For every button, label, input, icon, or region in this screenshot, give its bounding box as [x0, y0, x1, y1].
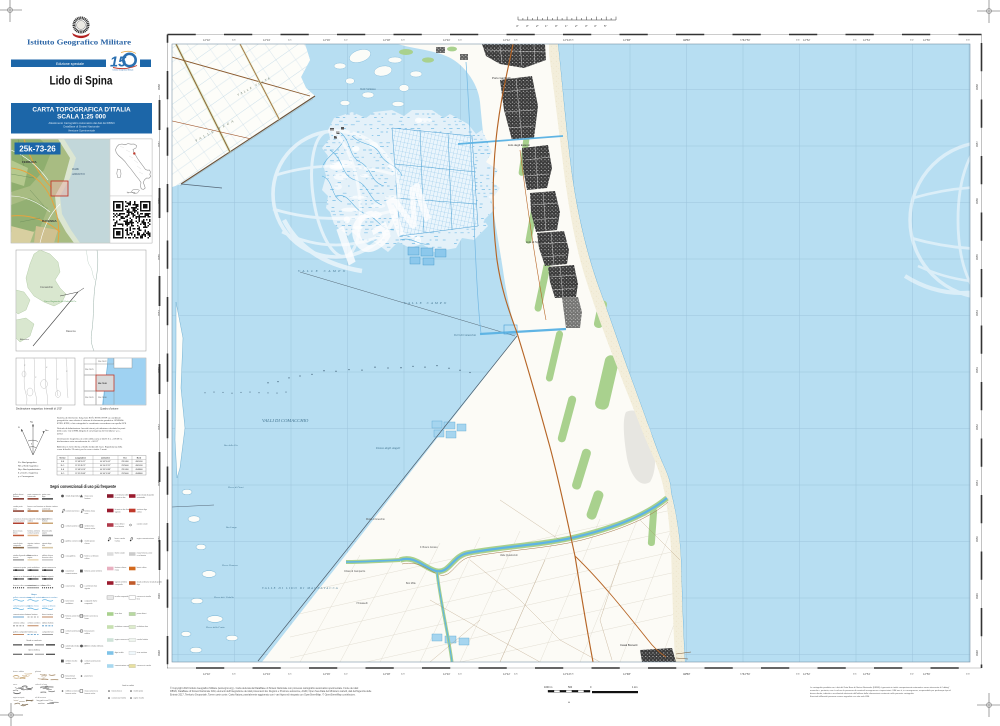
svg-text:dello carta: m= 0.9996. Angolo: dello carta: m= 0.9996. Angolo di conver…	[57, 430, 121, 433]
svg-text:MARE: MARE	[72, 168, 79, 171]
svg-text:carrareccia frutteto: carrareccia frutteto	[112, 697, 127, 700]
svg-text:autostrada: autostrada	[137, 496, 145, 499]
svg-text:Edizione speciale: Edizione speciale	[56, 62, 84, 66]
svg-text:Limiti e confini: Limiti e confini	[122, 684, 135, 687]
svg-text:prato: prato	[13, 507, 17, 510]
svg-text:tranvia: tranvia	[115, 539, 120, 542]
svg-text:tranvia bosco: tranvia bosco	[112, 690, 122, 693]
svg-text:faro edificio: faro edificio	[42, 584, 51, 587]
svg-text:Sistema di riferimento: Italy: Sistema di riferimento: Italy Zone Et Ét…	[57, 417, 121, 420]
svg-text:γ = Convergenza: γ = Convergenza	[18, 475, 35, 478]
svg-text:1°: 1°	[35, 377, 37, 379]
svg-text:Comacchio: Comacchio	[40, 285, 54, 289]
svg-text:pozzo binari: pozzo binari	[137, 612, 147, 615]
svg-text:autostrada: autostrada	[28, 495, 36, 498]
svg-text:coltivo: coltivo	[85, 557, 90, 560]
svg-text:faro: faro	[137, 597, 140, 600]
svg-text:ferrovia a due: ferrovia a due	[66, 692, 77, 695]
svg-text:calanchi e forre: calanchi e forre	[35, 683, 47, 686]
svg-text:SCALA 1:25 000: SCALA 1:25 000	[57, 114, 106, 121]
svg-text:Reticolo di delimitazione: fas: Reticolo di delimitazione: fascetti inte…	[57, 427, 126, 430]
svg-text:7625600: 7625600	[121, 473, 128, 475]
svg-text:Acque: Acque	[31, 593, 36, 596]
svg-text:Declinazione magnetica: Interv: Declinazione magnetica: Intervalli di 1'…	[16, 408, 62, 411]
svg-text:44°40'12.48": 44°40'12.48"	[100, 473, 111, 475]
svg-text:pozzo carrareccia: pozzo carrareccia	[42, 566, 56, 569]
svg-text:torre faro: torre faro	[115, 612, 122, 615]
svg-text:ferrovia a due: ferrovia a due	[42, 556, 53, 559]
svg-text:casa tranvia: casa tranvia	[66, 585, 75, 588]
svg-text:a un binario: a un binario	[137, 554, 146, 557]
svg-text:ferrovia a due: ferrovia a due	[66, 677, 77, 680]
svg-text:galleria: galleria	[85, 662, 91, 665]
svg-text:a un binario: a un binario	[115, 525, 124, 528]
svg-text:Declinazione magnetica al cent: Declinazione magnetica al centro della c…	[57, 438, 123, 441]
svg-text:0°: 0°	[46, 367, 48, 369]
svg-text:Segni convenzionali di uso più: Segni convenzionali di uso più frequente	[50, 484, 117, 489]
svg-text:argine carrareccia: argine carrareccia	[115, 638, 129, 641]
svg-text:ferrovia a due sentiero: ferrovia a due sentiero	[85, 570, 102, 573]
svg-text:Vertice: Vertice	[59, 456, 65, 459]
svg-text:25k-73-30: 25k-73-30	[98, 397, 107, 399]
svg-text:fiume: fiume	[85, 618, 89, 620]
svg-text:ETRS: ETRF, a fini cartografic: ETRS: ETRF, a fini cartografici le coord…	[57, 422, 127, 425]
svg-text:12°48'24.18": 12°48'24.18"	[75, 469, 86, 471]
svg-text:argini scarpate: argini scarpate	[13, 696, 25, 699]
svg-text:Parco Regionale del Delta del: Parco Regionale del Delta del Po	[44, 300, 77, 303]
svg-text:comunicazione: comunicazione	[66, 573, 78, 575]
svg-text:casa a un binario: casa a un binario	[42, 604, 55, 607]
svg-text:12°32'46.79": 12°32'46.79"	[75, 465, 86, 467]
svg-text:4948800: 4948800	[135, 473, 142, 475]
svg-text:carrareccia sentiero: carrareccia sentiero	[42, 596, 57, 599]
svg-text:25k-73-29: 25k-73-29	[85, 397, 94, 399]
svg-text:incolto campanile: incolto campanile	[115, 595, 129, 598]
svg-text:RAVENNA: RAVENNA	[42, 219, 57, 223]
svg-text:25k-73-22: 25k-73-22	[98, 361, 107, 363]
svg-text:diga: diga	[137, 584, 140, 586]
svg-text:torre fontana: torre fontana	[28, 613, 38, 616]
svg-text:Nq = Nord quadrettatura: Nq = Nord quadrettatura	[18, 468, 41, 471]
svg-text:cimitero strada ordinaria: cimitero strada ordinaria	[85, 645, 104, 648]
svg-text:Lido di Spina: Lido di Spina	[50, 74, 113, 88]
svg-text:00°10': 00°10'	[57, 433, 64, 435]
svg-text:N-O: N-O	[61, 465, 65, 467]
svg-text:comunicazione faro: comunicazione faro	[13, 613, 28, 616]
svg-text:Versione Sperimentale: Versione Sperimentale	[68, 128, 96, 132]
svg-text:campanile faro: campanile faro	[42, 630, 54, 633]
svg-text:FERRARA: FERRARA	[22, 160, 37, 164]
svg-text:Ravenna: Ravenna	[66, 330, 76, 333]
svg-text:2°: 2°	[24, 365, 26, 367]
svg-text:chiesa: chiesa	[66, 618, 71, 620]
svg-text:Est: Est	[124, 456, 127, 459]
svg-text:12°32'43.48": 12°32'43.48"	[75, 473, 86, 475]
svg-text:N = Nord geografico: N = Nord geografico	[18, 461, 37, 464]
svg-text:coltivo: coltivo	[137, 510, 142, 513]
svg-text:strada ordinaria strada di gra: strada ordinaria strada di grande	[137, 581, 162, 584]
svg-text:binari coltivo: binari coltivo	[137, 566, 147, 569]
svg-text:diga: diga	[28, 508, 31, 510]
svg-text:Alfonsine: Alfonsine	[20, 338, 30, 341]
svg-text:N: N	[18, 427, 20, 429]
svg-text:pozzo: pozzo	[28, 545, 33, 547]
svg-text:edificio: edificio	[85, 633, 90, 635]
svg-text:chiesa: chiesa	[85, 543, 90, 545]
svg-text:ferrovia a due: ferrovia a due	[115, 496, 126, 499]
svg-text:Quadro d'unione: Quadro d'unione	[100, 408, 119, 411]
svg-text:2°: 2°	[66, 371, 68, 373]
svg-text:CARTA TOPOGRAFICA D'ITALIA: CARTA TOPOGRAFICA D'ITALIA	[32, 107, 131, 114]
svg-text:carrareccia bosco: carrareccia bosco	[66, 510, 80, 513]
svg-text:Istituto Geografico Militare: Istituto Geografico Militare	[27, 39, 131, 47]
svg-text:4965200: 4965200	[135, 461, 142, 463]
svg-text:vigneto a un binario: vigneto a un binario	[13, 575, 28, 578]
svg-text:4948800: 4948800	[135, 469, 142, 471]
svg-text:12°48'20.22": 12°48'20.22"	[75, 461, 86, 463]
svg-text:tranvia: tranvia	[13, 556, 18, 559]
svg-text:25k-73-26: 25k-73-26	[19, 145, 56, 154]
svg-text:autostrada: autostrada	[42, 507, 50, 510]
svg-text:7625600: 7625600	[121, 465, 128, 467]
svg-text:δ = Declin. magnetica: δ = Declin. magnetica	[18, 472, 39, 475]
svg-text:galleria campanile: galleria campanile	[13, 630, 27, 633]
svg-text:7612400: 7612400	[121, 469, 128, 471]
svg-text:Nq: Nq	[30, 422, 34, 424]
svg-text:argine incolto: argine incolto	[134, 697, 144, 700]
svg-text:44°39'24.88": 44°39'24.88"	[100, 469, 111, 471]
svg-text:carrareccia canale: carrareccia canale	[137, 664, 151, 667]
svg-text:argine comunicazione: argine comunicazione	[137, 537, 154, 540]
svg-text:S-O: S-O	[61, 473, 65, 475]
svg-text:incolto prato: incolto prato	[134, 690, 144, 693]
svg-text:DataBase di Sintesi Nazionale: DataBase di Sintesi Nazionale	[63, 124, 100, 128]
svg-text:frutteto vigneto: frutteto vigneto	[42, 575, 54, 578]
svg-text:pozzo faro: pozzo faro	[85, 675, 93, 678]
svg-text:δ: δ	[31, 444, 32, 446]
svg-text:binari: binari	[13, 532, 18, 535]
svg-text:frutteto casa: frutteto casa	[28, 630, 38, 633]
svg-text:curve di livello: 25 metri; pe: curve di livello: 25 metri; per le curve…	[57, 448, 107, 451]
svg-text:rocce: rocce	[13, 683, 17, 686]
svg-text:orli di terrazzo: orli di terrazzo	[35, 696, 46, 699]
svg-text:prato mulattiera: prato mulattiera	[28, 566, 40, 569]
svg-text:canale frutteto: canale frutteto	[137, 638, 148, 641]
svg-text:Longitudine: Longitudine	[75, 456, 86, 459]
svg-text:campanile: campanile	[13, 545, 21, 547]
svg-text:diga incolto: diga incolto	[115, 651, 124, 654]
svg-text:ghiaioni: ghiaioni	[35, 671, 42, 673]
svg-text:vigneto: vigneto	[85, 587, 91, 590]
svg-text:geografiche sono riferite al s: geografiche sono riferite al sistema di …	[57, 419, 124, 422]
svg-text:mulattiera faro: mulattiera faro	[137, 625, 148, 628]
svg-text:campanile: campanile	[115, 584, 123, 586]
svg-text:4965200: 4965200	[135, 465, 142, 467]
svg-text:edificio: edificio	[28, 521, 33, 523]
svg-text:vigneto: vigneto	[115, 510, 121, 513]
svg-text:44°49'59.02": 44°49'59.02"	[100, 461, 111, 463]
svg-text:fiume canale: fiume canale	[115, 553, 125, 555]
svg-text:Istituto Geografico Militare: Istituto Geografico Militare	[113, 68, 134, 71]
svg-text:argine: argine	[28, 556, 33, 559]
svg-text:mulattiera: mulattiera	[66, 602, 74, 605]
svg-text:edificio frutteto: edificio frutteto	[42, 622, 53, 625]
svg-text:frutteto: frutteto	[42, 520, 47, 523]
svg-text:galleria carrareccia: galleria carrareccia	[66, 540, 81, 543]
svg-text:Igmit.org: Igmit.org	[127, 191, 136, 194]
svg-text:Nm: Nm	[45, 430, 49, 432]
svg-text:campanile: campanile	[85, 603, 93, 605]
svg-text:fontana: fontana	[85, 497, 91, 500]
svg-text:binari cimitero: binari cimitero	[42, 613, 53, 616]
svg-text:cimitero sentiero: cimitero sentiero	[28, 622, 41, 625]
svg-text:cimitero coltivo: cimitero coltivo	[13, 622, 25, 625]
svg-text:ADRIATICO: ADRIATICO	[71, 173, 85, 176]
svg-text:ferrovia a due: ferrovia a due	[85, 527, 96, 530]
svg-text:canale canale: canale canale	[137, 524, 148, 526]
svg-text:carrareccia prato: carrareccia prato	[13, 566, 26, 569]
svg-text:25k-73-25: 25k-73-25	[85, 369, 94, 371]
svg-text:frutteto: frutteto	[66, 647, 71, 650]
svg-text:fontana: fontana	[13, 495, 19, 498]
svg-text:Strade e cavalcavia: Strade e cavalcavia	[26, 639, 41, 642]
svg-text:diga: diga	[42, 496, 45, 498]
svg-text:comunicazione: comunicazione	[13, 521, 25, 523]
svg-text:Opere di difesa: Opere di difesa	[28, 649, 40, 652]
svg-text:torre sentiero: torre sentiero	[137, 651, 147, 654]
svg-text:25k-73-26: 25k-73-26	[98, 383, 107, 385]
svg-text:dune e sabbie: dune e sabbie	[13, 671, 24, 673]
svg-text:Altimetria in metri riferita a: Altimetria in metri riferita al livello …	[57, 445, 123, 448]
svg-text:ferrovia a due: ferrovia a due	[85, 692, 96, 695]
svg-text:vigneto chiesa: vigneto chiesa	[28, 604, 39, 607]
svg-text:argine: argine	[42, 532, 47, 535]
svg-text:incolto: incolto	[66, 662, 71, 665]
svg-text:casa galleria: casa galleria	[66, 555, 76, 558]
svg-text:7612400: 7612400	[121, 461, 128, 463]
svg-text:casa: casa	[85, 513, 89, 515]
svg-text:Latitudine: Latitudine	[101, 456, 110, 459]
svg-text:faro: faro	[66, 632, 69, 635]
svg-text:faro: faro	[42, 544, 45, 547]
svg-text:1°: 1°	[57, 379, 59, 381]
svg-text:Nm = Nord magnetico: Nm = Nord magnetico	[18, 465, 39, 468]
svg-text:44°50'47.22": 44°50'47.22"	[100, 465, 111, 467]
svg-text:comunicazione: comunicazione	[28, 533, 40, 535]
svg-text:risaia: risaia	[115, 568, 119, 571]
svg-text:declinazione varia annualmente: declinazione varia annualmente di: + 00°…	[57, 440, 99, 443]
